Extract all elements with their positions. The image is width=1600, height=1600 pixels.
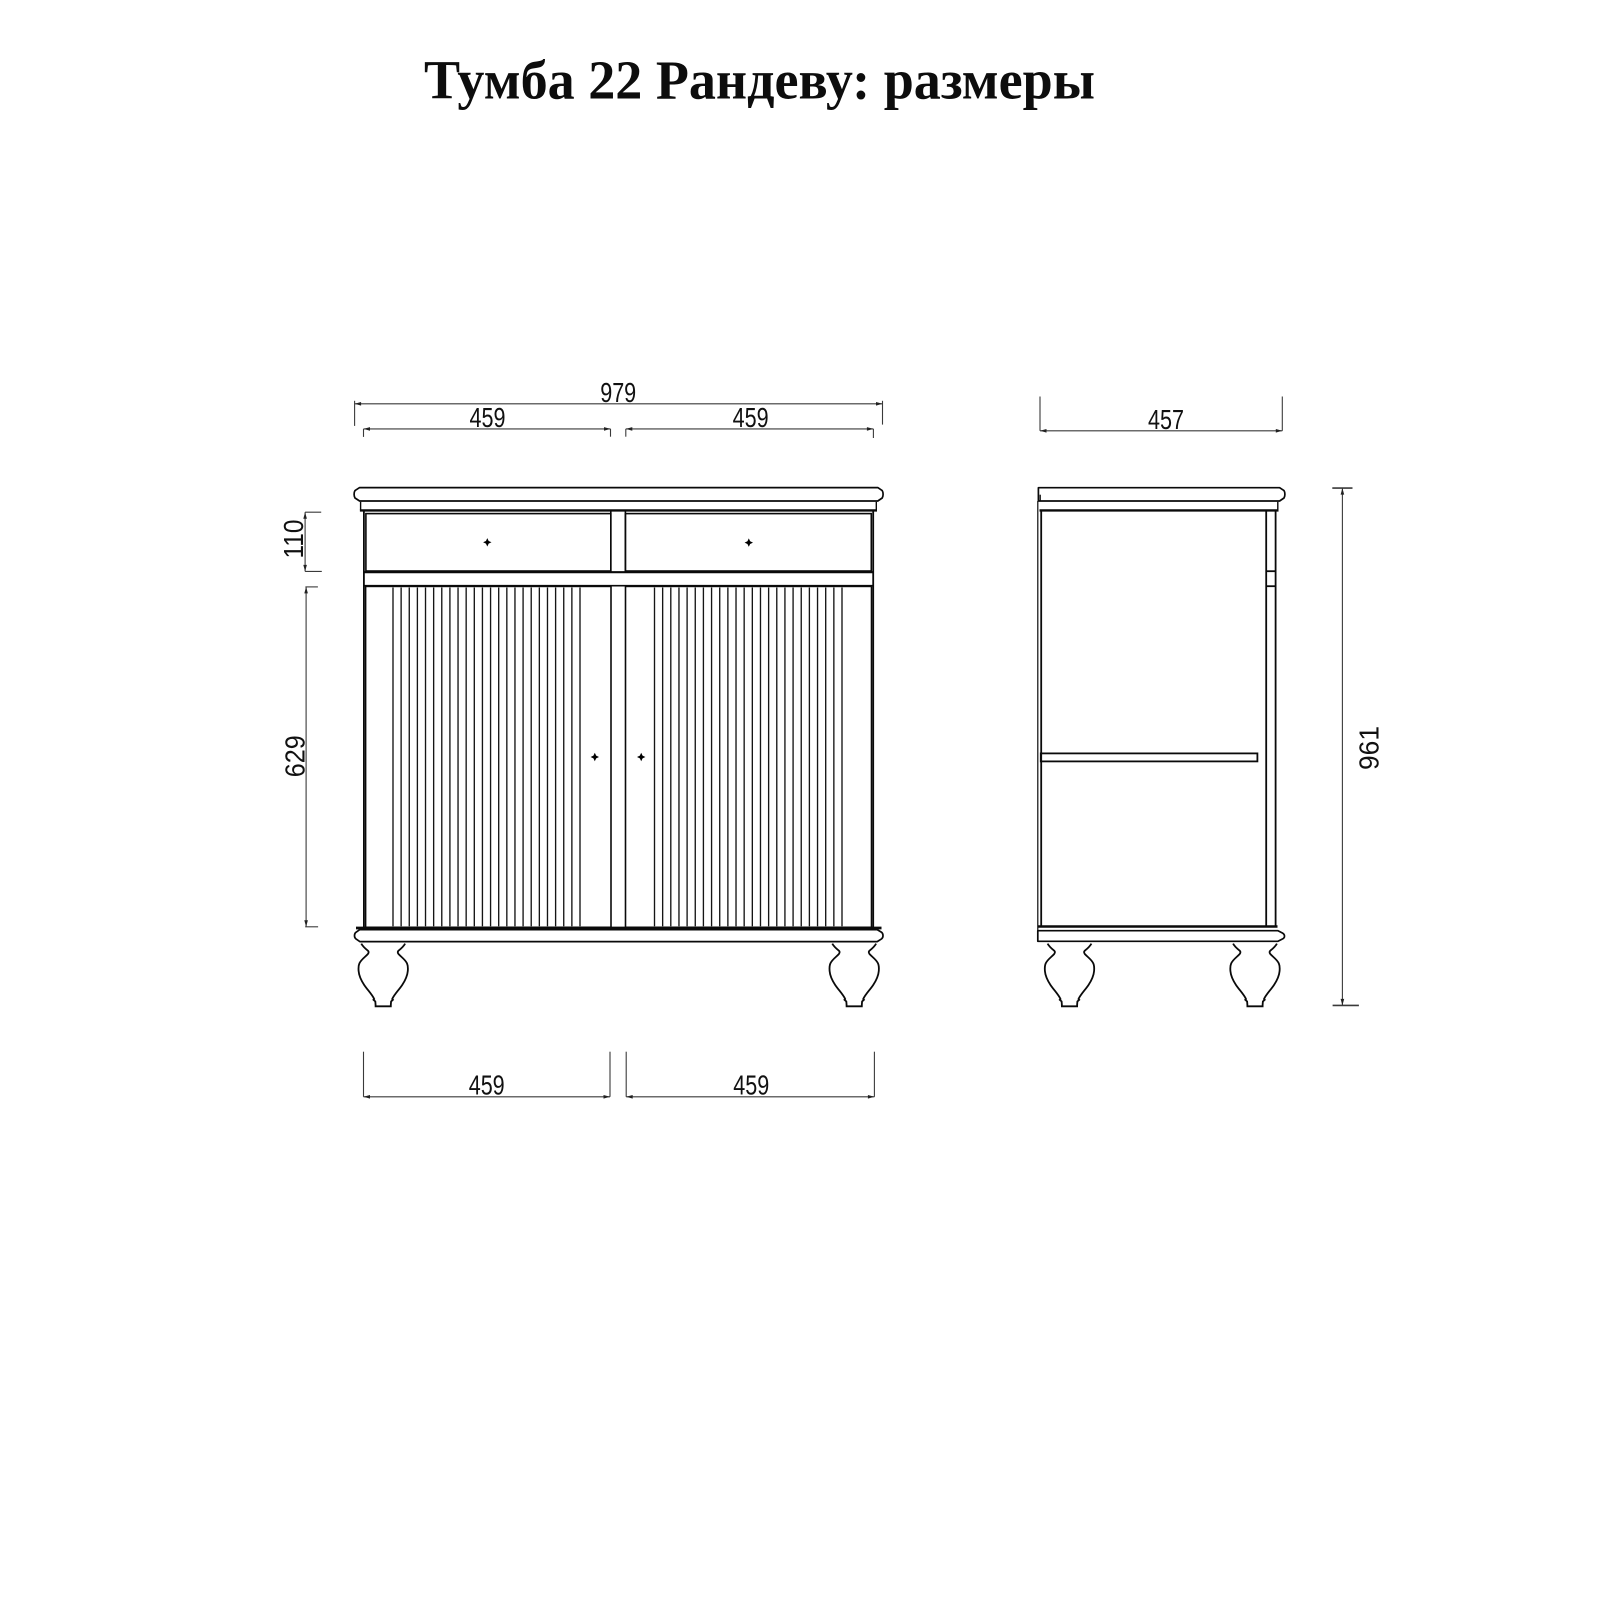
svg-text:629: 629 — [280, 735, 311, 777]
svg-text:459: 459 — [733, 402, 769, 433]
svg-text:961: 961 — [1354, 726, 1385, 770]
svg-text:457: 457 — [1148, 404, 1184, 435]
svg-text:459: 459 — [733, 1070, 769, 1101]
svg-text:979: 979 — [600, 377, 636, 408]
svg-text:Тумба 22 Рандеву: размеры: Тумба 22 Рандеву: размеры — [424, 50, 1095, 111]
svg-text:459: 459 — [470, 402, 506, 433]
svg-text:110: 110 — [278, 520, 309, 559]
svg-text:459: 459 — [469, 1070, 505, 1101]
